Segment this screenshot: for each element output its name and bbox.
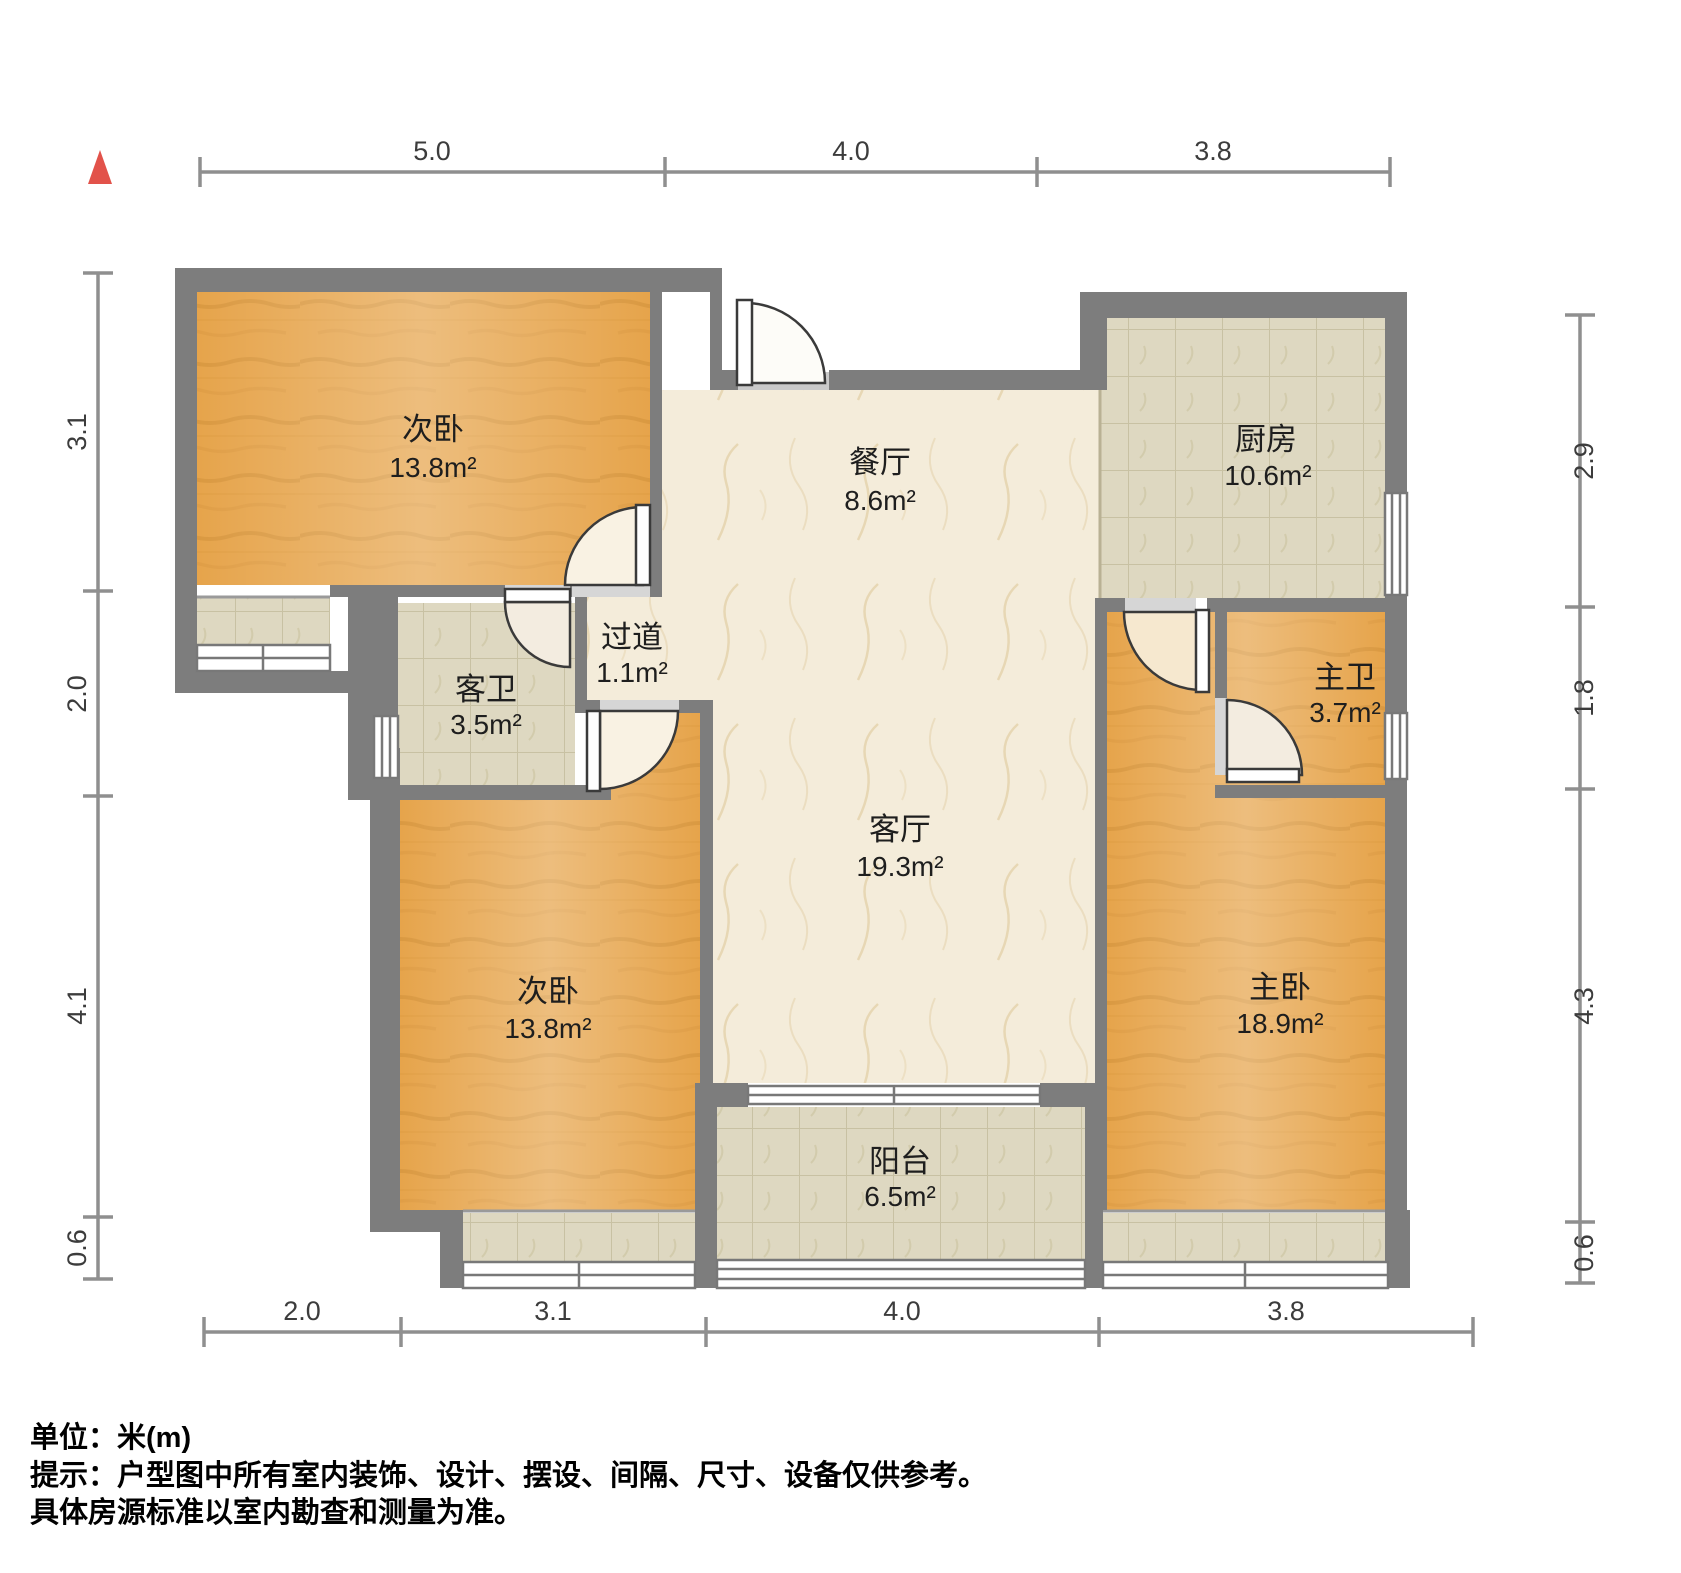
dim-bottom-2: 4.0 [883, 1296, 921, 1326]
wall [700, 713, 713, 1210]
room-area-master-bedroom: 18.9m² [1236, 1008, 1323, 1039]
bay1-floor [197, 597, 330, 645]
wall [575, 597, 587, 713]
balcony-slider-icon [748, 1086, 1040, 1104]
dim-left-2: 4.1 [62, 987, 92, 1025]
room-area-bedroom-top: 13.8m² [389, 452, 476, 483]
bay2-window-icon [463, 1262, 695, 1288]
room-area-dining: 8.6m² [844, 485, 916, 516]
room-area-master-bath: 3.7m² [1309, 697, 1381, 728]
dim-right-2: 4.3 [1569, 987, 1599, 1025]
floor-plan-canvas: 次卧 13.8m² 餐厅 8.6m² 厨房 10.6m² 客卫 3.5m² 过道… [0, 0, 1681, 1568]
room-label-kitchen: 厨房 [1235, 422, 1297, 457]
wall [1207, 598, 1407, 612]
footer-tip-line2: 具体房源标准以室内勘查和测量为准。 [30, 1495, 523, 1529]
master-bath-door-leaf [1227, 769, 1299, 782]
hallway-floor [587, 597, 662, 713]
dim-right-3: 0.6 [1569, 1234, 1599, 1272]
room-label-guest-bath: 客卫 [455, 672, 517, 707]
dim-left-3: 0.6 [62, 1229, 92, 1267]
bay3-window-icon [1103, 1262, 1388, 1288]
north-indicator-icon [88, 150, 112, 184]
dim-top-1: 4.0 [832, 136, 870, 166]
room-area-guest-bath: 3.5m² [450, 709, 522, 740]
wall [175, 268, 197, 693]
bay2-floor [463, 1213, 695, 1262]
wall [1215, 785, 1407, 798]
wall [175, 268, 720, 292]
dim-left-1: 2.0 [62, 675, 92, 713]
dim-right-1: 1.8 [1569, 679, 1599, 717]
dim-bottom-3: 3.8 [1267, 1296, 1305, 1326]
dim-left-0: 3.1 [62, 413, 92, 451]
dim-top-0: 5.0 [413, 136, 451, 166]
wall [1080, 292, 1407, 318]
bedroom-top-door-leaf [636, 505, 650, 585]
room-label-master-bedroom: 主卧 [1249, 970, 1311, 1005]
room-label-bedroom-bottom: 次卧 [517, 974, 579, 1009]
wall [1215, 612, 1227, 698]
room-area-hallway: 1.1m² [596, 657, 668, 688]
wall [175, 671, 374, 693]
dim-top-2: 3.8 [1194, 136, 1232, 166]
balcony-railing-icon [717, 1260, 1085, 1288]
guest-bath-window-icon [374, 716, 398, 778]
master-bedroom-door-leaf [1196, 610, 1209, 692]
guest-bath-door-leaf [505, 589, 570, 602]
entry-door-leaf [737, 300, 752, 385]
entry-door-arc [745, 303, 825, 383]
room-label-bedroom-top: 次卧 [402, 412, 464, 447]
room-area-balcony: 6.5m² [864, 1181, 936, 1212]
wall [700, 1083, 748, 1107]
wall [1090, 1210, 1103, 1288]
wall [1095, 598, 1107, 1210]
footer-unit-line: 单位：米(m) [30, 1420, 191, 1454]
dim-bottom-1: 3.1 [534, 1296, 572, 1326]
bay1-window-icon [197, 645, 330, 671]
opening-master-bedroom [1125, 598, 1196, 612]
floor-plan-page: 次卧 13.8m² 餐厅 8.6m² 厨房 10.6m² 客卫 3.5m² 过道… [0, 0, 1681, 1568]
wall [370, 748, 400, 1210]
room-label-living: 客厅 [869, 812, 931, 847]
bay3-floor [1103, 1213, 1388, 1262]
kitchen-window-icon [1385, 493, 1407, 595]
wall [829, 370, 1080, 390]
room-area-bedroom-bottom: 13.8m² [504, 1013, 591, 1044]
room-label-dining: 餐厅 [849, 445, 911, 480]
wall [440, 1210, 463, 1288]
bedroom-bottom-door-leaf [587, 711, 600, 791]
opening-bedroom-top [572, 585, 650, 597]
dim-right-0: 2.9 [1569, 442, 1599, 480]
footer-tip-line1: 提示：户型图中所有室内装饰、设计、摆设、间隔、尺寸、设备仅供参考。 [30, 1458, 987, 1492]
wall [710, 268, 722, 390]
kitchen-floor [1100, 318, 1385, 598]
room-area-kitchen: 10.6m² [1224, 460, 1311, 491]
master-bath-window-icon [1385, 713, 1407, 779]
room-area-living: 19.3m² [856, 851, 943, 882]
opening-master-bath [1215, 698, 1227, 775]
room-label-hallway: 过道 [601, 620, 663, 655]
room-label-balcony: 阳台 [869, 1144, 931, 1179]
wall [1040, 1083, 1095, 1107]
dim-bottom-0: 2.0 [283, 1296, 321, 1326]
wall [650, 268, 662, 597]
wall [679, 700, 713, 713]
room-label-master-bath: 主卫 [1314, 660, 1376, 695]
footer-notes: 单位：米(m) 提示：户型图中所有室内装饰、设计、摆设、间隔、尺寸、设备仅供参考… [30, 1420, 987, 1529]
wall [722, 370, 738, 390]
